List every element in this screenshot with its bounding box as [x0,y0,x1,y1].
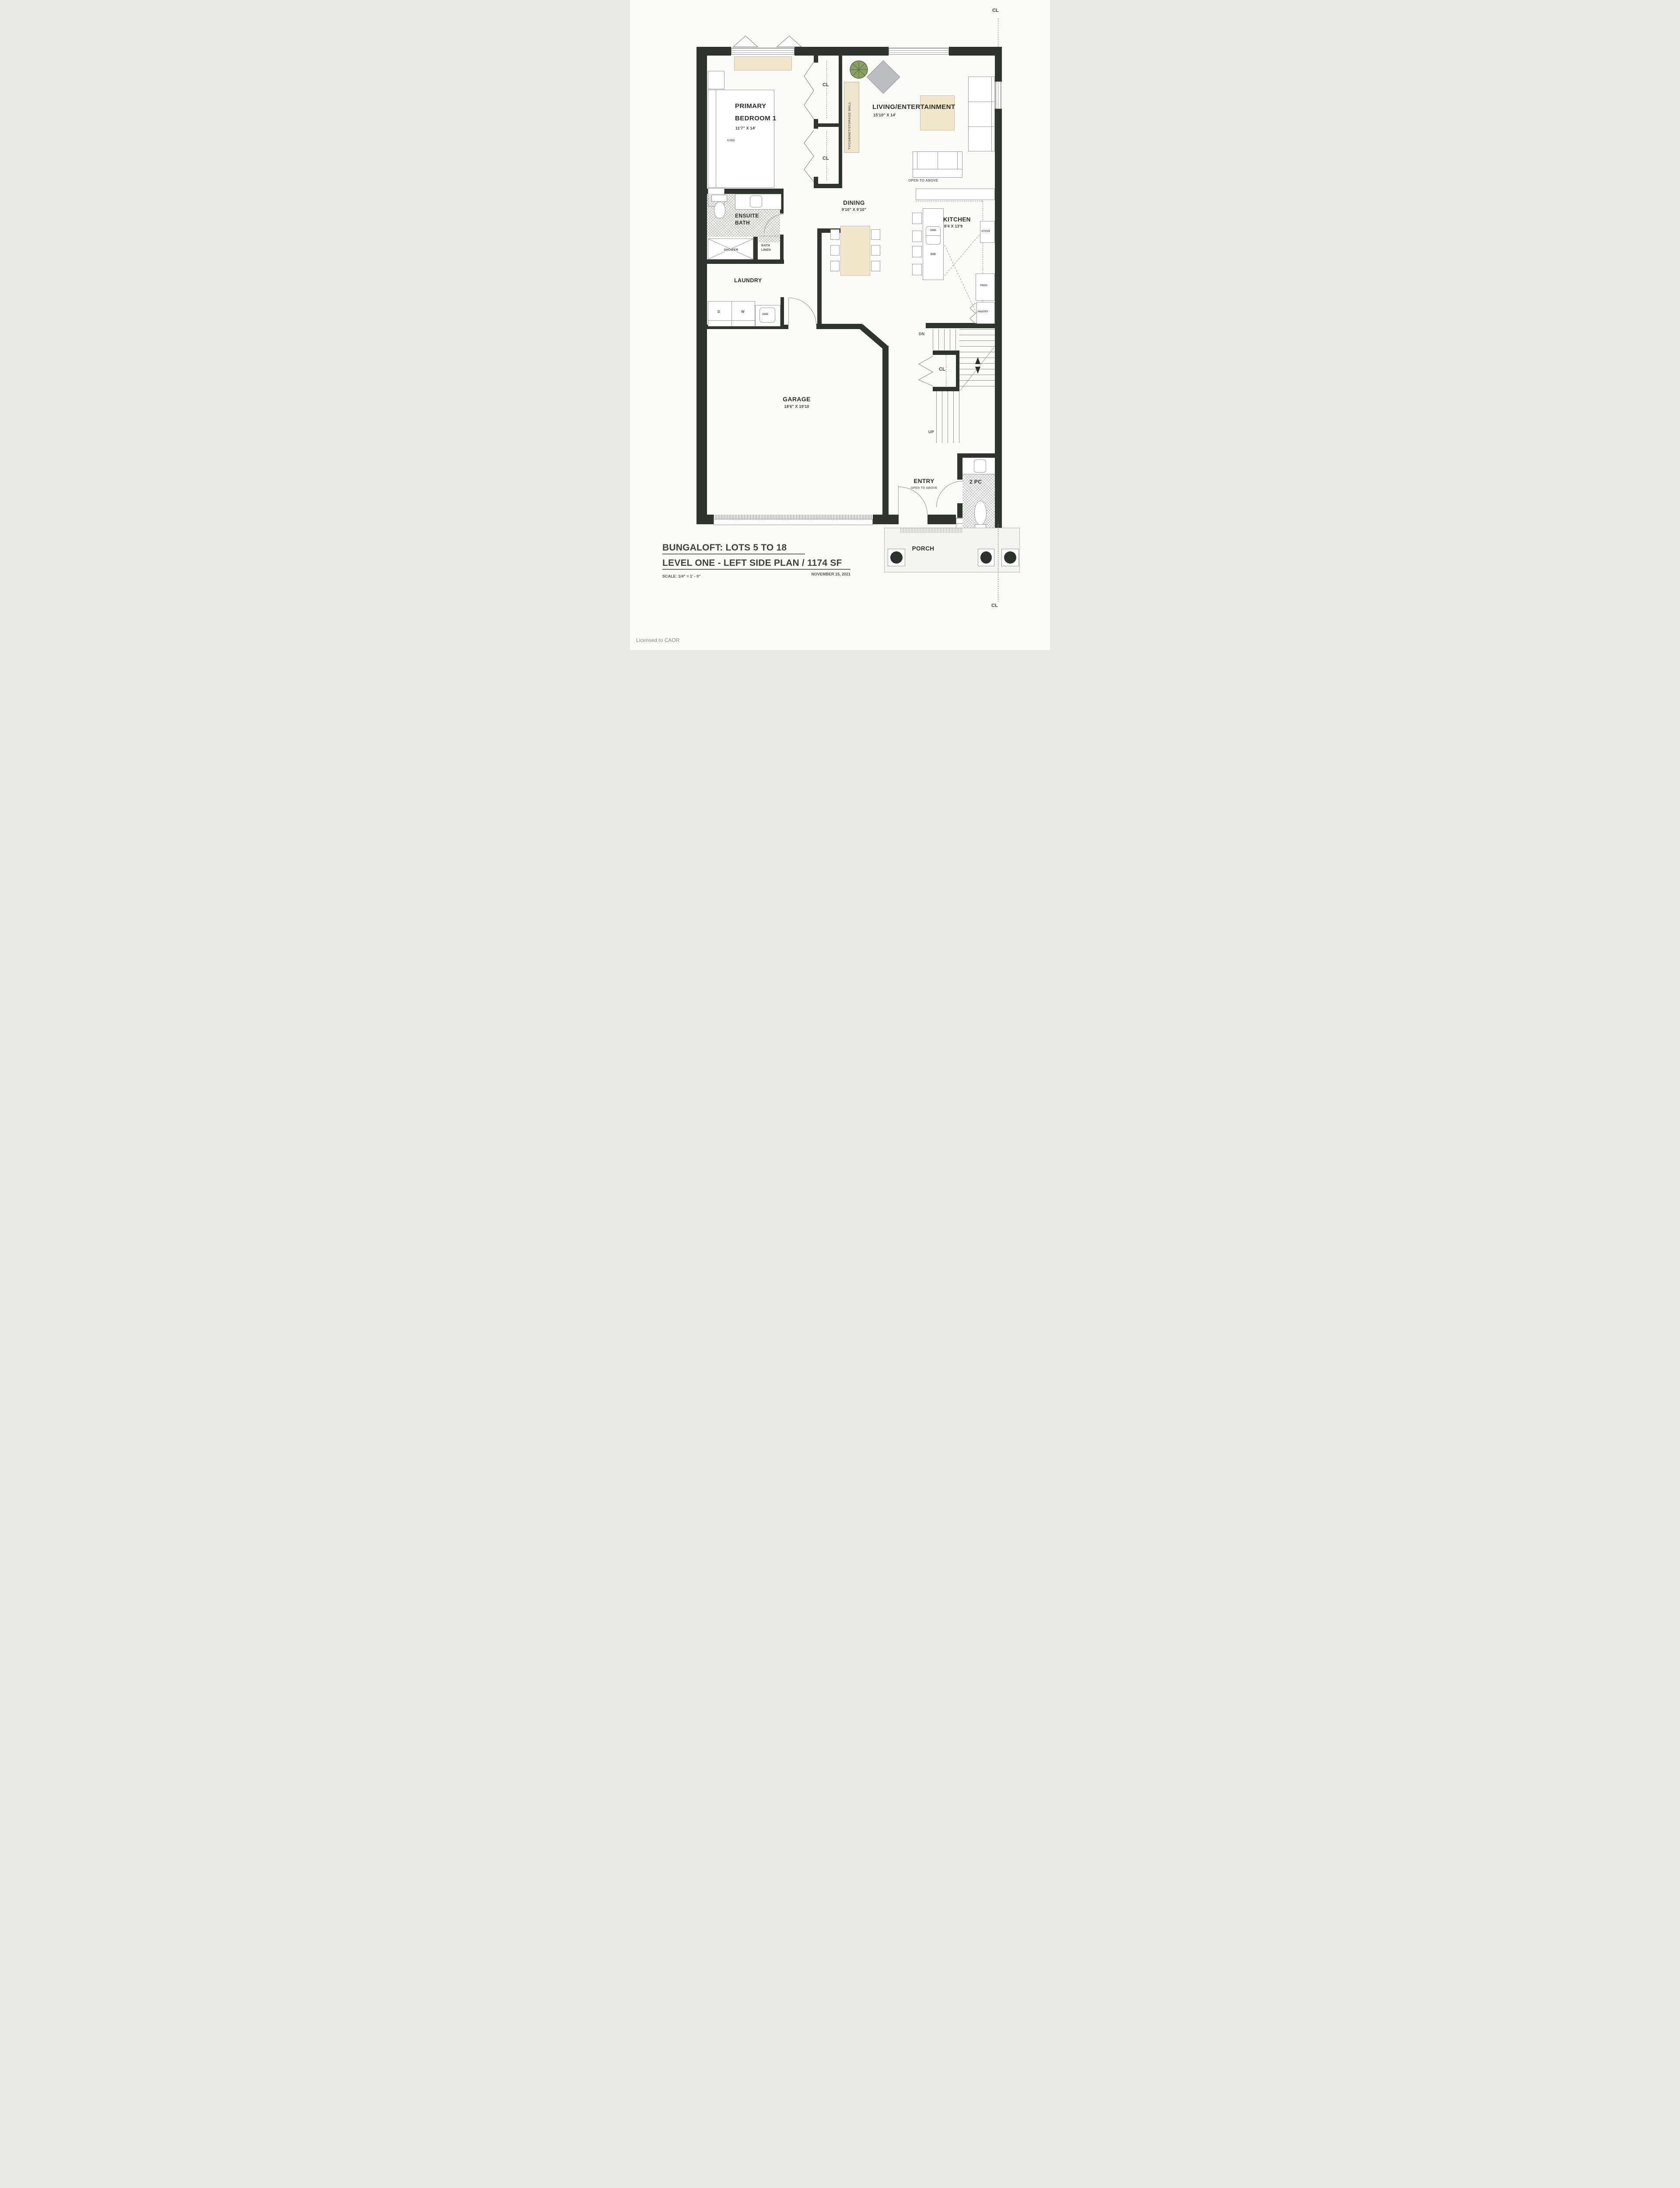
closet-1-label: CL [822,82,829,88]
wall-laundry-stub [780,297,784,326]
wall-staircloset-right [956,351,959,391]
island-stool [912,231,922,242]
dining-label: DINING [836,200,871,206]
porch-column [978,549,994,566]
date-note: NOVEMBER 15, 2021 [811,572,850,576]
wall-staircloset-top [933,351,959,355]
dining-chair [871,261,880,271]
porch-column [888,549,905,566]
wall-top-3 [949,47,1002,56]
side-window [995,81,1001,109]
shower-label: SHOWER [716,249,746,252]
kitchen-upper-counter [916,189,995,200]
2pc-toilet-bowl [974,501,987,525]
centerline-bottom-line [998,524,998,602]
ensuite-toilet-bowl [714,202,725,218]
side-table-diamond [867,60,900,94]
wall-closet-stub-mid [814,119,818,129]
sofa-sectional [968,77,995,151]
title-line-2: LEVEL ONE - LEFT SIDE PLAN / 1174 SF [662,558,850,570]
centerline-top-label: CL [992,8,999,13]
laundry-divider [731,301,732,326]
bedroom-dims: 11'7" X 14' [735,126,756,130]
porch-column [1001,549,1019,566]
dining-chair [830,229,840,240]
bifold-door-closet-1 [801,61,815,120]
wall-shower-linen [753,237,758,259]
washer-label: W [741,310,745,314]
loveseat-back-line [913,169,962,169]
sofa-cushion-line-2 [968,126,995,127]
island-stool [912,264,922,275]
tv-cabinet-wall-label: TV/CABINET/STORAGE WALL [848,86,851,150]
loveseat-cushion-line [938,151,938,169]
dining-dims: 9'10" X 9'10" [836,207,871,212]
laundry-front-line [708,320,755,321]
bed-headboard-line [716,90,716,187]
2pc-door-arc [936,481,962,507]
wall-front-right [927,515,956,524]
2pc-sink [974,459,986,473]
garage-door-hatch [714,515,873,519]
living-rug [920,95,955,130]
garage-label: GARAGE [773,396,821,403]
bedroom-label-2: BEDROOM 1 [735,115,776,122]
laundry-sink-label: SINK [762,313,768,316]
porch-step-band [900,528,962,533]
stairs-winders [936,391,960,443]
wall-staircloset-bottom [933,387,959,391]
plant-icon [849,60,869,80]
wall-front-mid [873,515,899,524]
ensuite-label-1: ENSUITE [735,213,759,219]
stairs-break-line [959,344,995,392]
wall-ensuite-right-b [780,235,784,261]
ensuite-sink [750,196,762,207]
bedroom-label-1: PRIMARY [735,102,766,110]
wall-left [696,47,707,524]
garage-door-panel [714,519,873,525]
king-label: KING [727,139,735,142]
dining-chair [830,261,840,271]
nightstand-top [708,71,724,89]
wall-top-2 [794,47,889,56]
fridge [976,273,995,301]
wall-closet-right [839,56,842,188]
dining-chair [871,245,880,256]
license-note: Licensed to CAOR [636,637,679,643]
bedroom-window [731,48,794,55]
living-dims: 15'10" X 14' [873,113,896,117]
floor-plan-sheet: CL PRIMARY [630,0,1050,650]
fridge-label: FRDG [980,284,987,287]
front-door-arc [899,487,927,515]
island-sink-label: SINK [926,229,940,232]
garage-door-leaf [788,298,789,325]
dining-chair [830,245,840,256]
centerline-top-line [998,18,998,47]
dishwasher-label: DW [926,253,940,256]
pantry-door-icon [968,302,976,325]
wall-closet-bottom [814,184,842,188]
living-window [889,48,949,55]
kitchen-counter-dash-top [916,201,983,201]
title-line-1: BUNGALOFT: LOTS 5 TO 18 [662,543,805,554]
wall-dining-garage [817,228,822,325]
porch-label: PORCH [906,545,941,552]
island-sink-divider [926,235,941,236]
garage-dims: 18'6" X 19'10 [773,404,821,409]
dining-chair [871,229,880,240]
island-stool [912,213,922,224]
wall-2pc-left-a [957,453,962,480]
sofa-cushion-line-1 [968,102,995,102]
title-block: BUNGALOFT: LOTS 5 TO 18 LEVEL ONE - LEFT… [662,543,850,580]
linen-label-2: LINEN [761,249,771,252]
entry-label: ENTRY [906,478,941,484]
loveseat-arm-right [957,151,958,169]
wall-closet-divider [818,123,839,127]
living-label: LIVING/ENTERTAINMENT [872,103,955,111]
ensuite-label-2: BATH [735,220,750,226]
loveseat-arm-left [917,151,917,169]
stairs-up-label: UP [928,430,934,434]
ensuite-toilet-tank [711,195,727,202]
open-above-living-label: OPEN TO ABOVE [908,179,938,182]
laundry-label: LAUNDRY [734,277,762,284]
wall-ensuite-bottom [696,259,784,264]
pantry-label: PANTRY [978,311,988,313]
linen-label-1: BATH [761,244,770,247]
sofa-back-line [991,77,992,151]
bedroom-dresser [734,56,792,70]
stove-label: STOVE [981,230,990,233]
tv-cabinet-wall: TV/CABINET/STORAGE WALL [844,82,859,153]
wall-garage-right [882,346,889,524]
stair-closet-rod [946,355,946,386]
2pc-label: 2 PC [969,479,982,485]
dining-table [840,226,870,276]
garage-door-arc [788,298,816,325]
wall-garage-top [816,324,862,329]
wall-front-garage-left [696,515,714,524]
island-stool [912,246,922,257]
closet-2-label: CL [822,156,829,161]
stairs-lower-flight [933,329,959,350]
stairs-dn-label: DN [919,332,924,336]
window-treatment-icon [731,35,803,48]
bifold-door-closet-2 [801,130,815,183]
bifold-door-stair-closet [912,354,934,388]
linen-hatch [759,235,780,242]
wall-right-1 [995,47,1002,82]
centerline-bottom-label: CL [991,603,998,608]
closet-rod-1 [826,61,827,118]
scale-note: SCALE: 1/4" = 1' - 0" [662,574,700,579]
dryer-label: D [717,310,720,314]
stair-closet-label: CL [939,367,945,372]
